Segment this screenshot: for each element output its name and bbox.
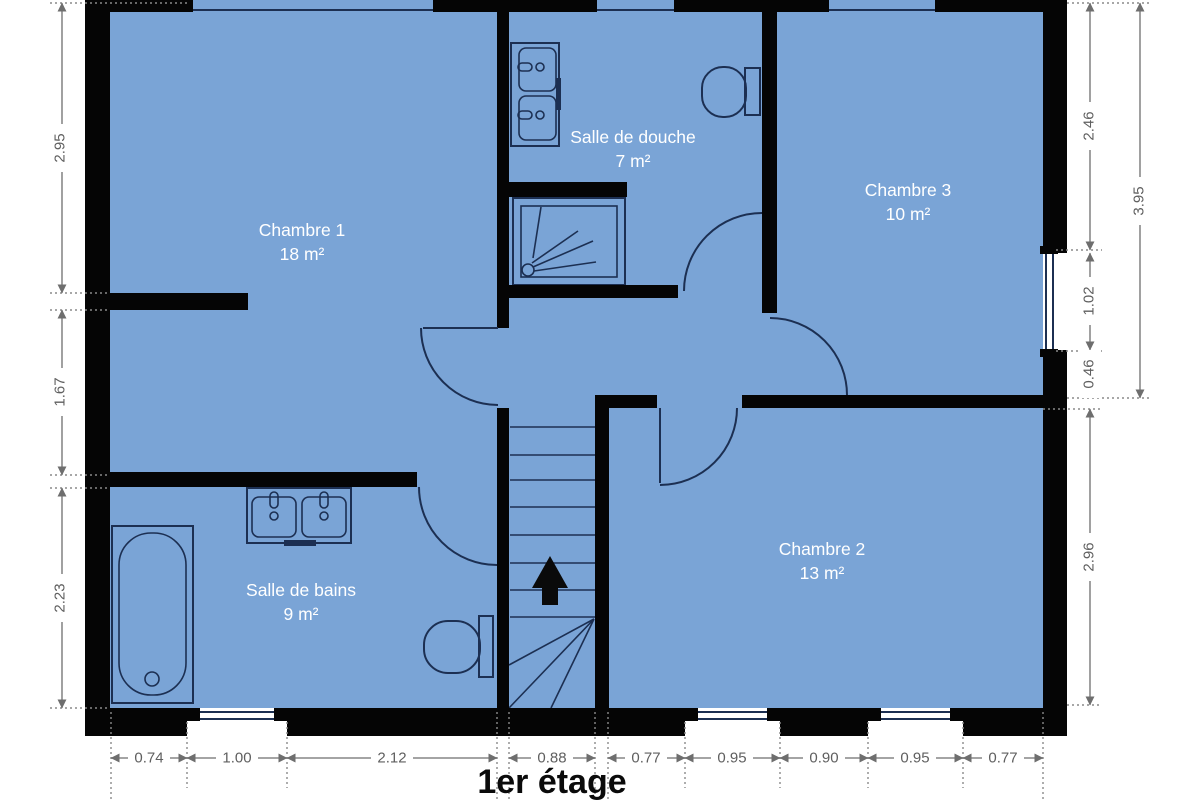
dim-bottom-7: 0.95 <box>900 750 929 767</box>
window-bottom-salle-de-bains <box>187 708 287 736</box>
dim-bottom-0: 0.74 <box>134 750 163 767</box>
window-bottom-chambre2-left <box>685 708 780 736</box>
label-chambre2: Chambre 2 <box>779 539 866 559</box>
dim-left-1: 1.67 <box>52 377 69 406</box>
window-right-chambre3 <box>1040 246 1067 357</box>
label-chambre3: Chambre 3 <box>865 180 952 200</box>
dim-bottom-5: 0.95 <box>717 750 746 767</box>
wall-right <box>1043 0 1067 736</box>
floor-title: 1er étage <box>477 763 626 800</box>
dim-bottom-1: 1.00 <box>222 750 251 767</box>
label-chambre1-area: 18 m² <box>280 244 325 264</box>
label-chambre1: Chambre 1 <box>259 220 346 240</box>
floor-plan-page: Chambre 1 18 m² Salle de douche 7 m² Cha… <box>0 0 1200 800</box>
label-salle-de-douche: Salle de douche <box>570 127 696 147</box>
floor-area <box>85 0 1067 736</box>
dim-left-0: 2.95 <box>52 133 69 162</box>
label-chambre2-area: 13 m² <box>800 563 845 583</box>
dim-bottom-8: 0.77 <box>988 750 1017 767</box>
label-salle-de-bains-area: 9 m² <box>284 604 319 624</box>
window-top-chambre3 <box>829 0 935 12</box>
dim-right-3: 2.96 <box>1081 542 1098 571</box>
dim-bottom-4: 0.77 <box>631 750 660 767</box>
label-salle-de-douche-area: 7 m² <box>616 151 651 171</box>
label-salle-de-bains: Salle de bains <box>246 580 356 600</box>
wall-left <box>85 0 110 736</box>
label-chambre3-area: 10 m² <box>886 204 931 224</box>
dim-bottom-6: 0.90 <box>809 750 838 767</box>
dim-left-2: 2.23 <box>52 583 69 612</box>
dim-bottom-2: 2.12 <box>377 750 406 767</box>
window-bottom-chambre2-right <box>868 708 963 736</box>
floor-plan-drawing: Chambre 1 18 m² Salle de douche 7 m² Cha… <box>0 0 1200 800</box>
dim-right-2: 0.46 <box>1081 359 1098 388</box>
dim-right-overall: 3.95 <box>1131 186 1148 215</box>
window-top-salle-de-douche <box>597 0 674 12</box>
dim-right-0: 2.46 <box>1081 111 1098 140</box>
dim-right-1: 1.02 <box>1081 286 1098 315</box>
window-top-chambre1 <box>193 0 433 12</box>
